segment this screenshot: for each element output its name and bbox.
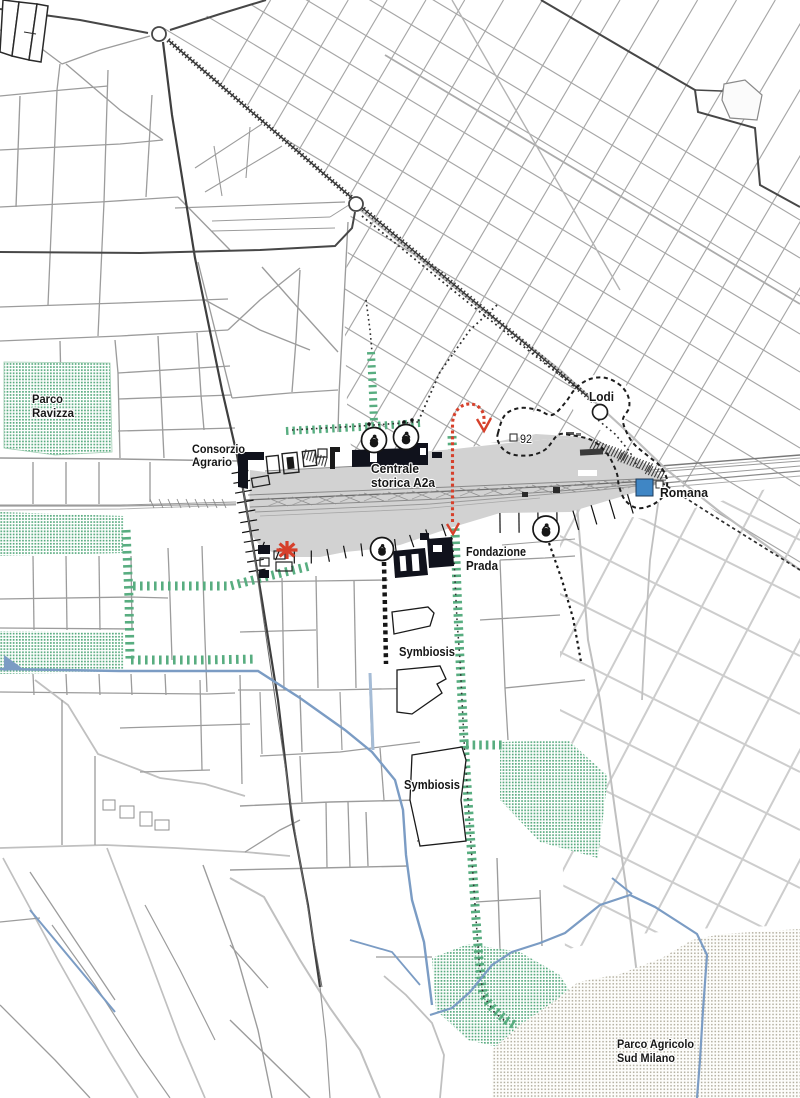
- svg-text:storica A2a: storica A2a: [371, 476, 436, 490]
- svg-text:Fondazione: Fondazione: [466, 545, 526, 559]
- svg-text:Symbiosis: Symbiosis: [399, 645, 455, 659]
- svg-text:Lodi: Lodi: [589, 390, 614, 404]
- svg-text:Parco Agricolo: Parco Agricolo: [617, 1039, 694, 1051]
- svg-text:Sud Milano: Sud Milano: [617, 1053, 675, 1065]
- svg-text:Prada: Prada: [466, 559, 499, 573]
- svg-text:Symbiosis: Symbiosis: [404, 778, 460, 792]
- svg-text:Romana: Romana: [660, 486, 709, 500]
- svg-text:Consorzio: Consorzio: [192, 442, 245, 456]
- svg-text:Ravizza: Ravizza: [32, 406, 74, 420]
- svg-text:Parco: Parco: [32, 392, 63, 406]
- svg-text:Agrario: Agrario: [192, 455, 232, 469]
- svg-text:92: 92: [520, 434, 532, 446]
- svg-text:Centrale: Centrale: [371, 462, 419, 476]
